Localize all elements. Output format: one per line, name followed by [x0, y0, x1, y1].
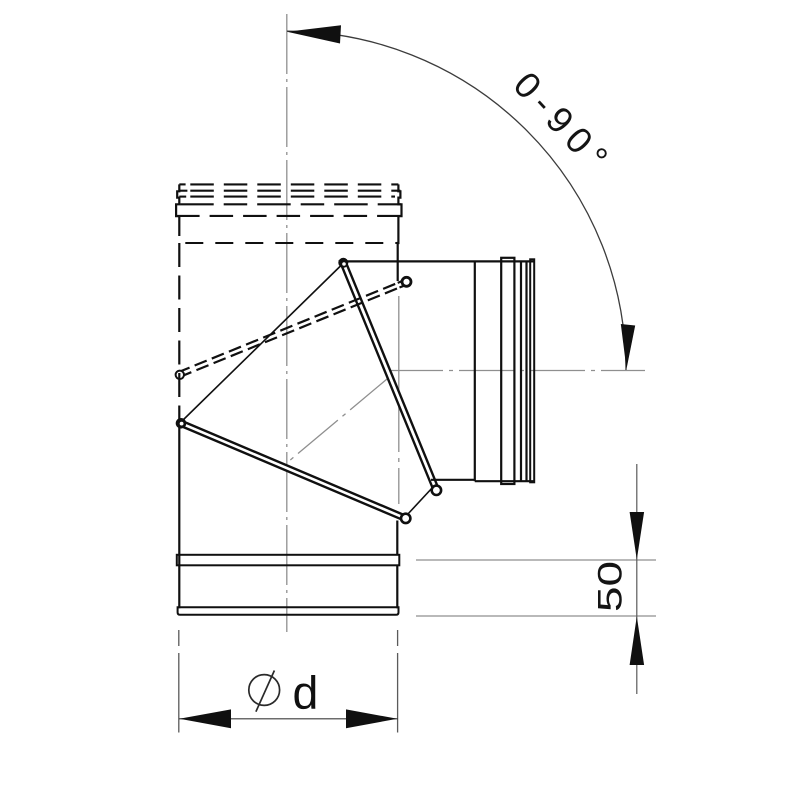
svg-text:50: 50 — [592, 561, 630, 612]
svg-text:d: d — [293, 667, 319, 719]
